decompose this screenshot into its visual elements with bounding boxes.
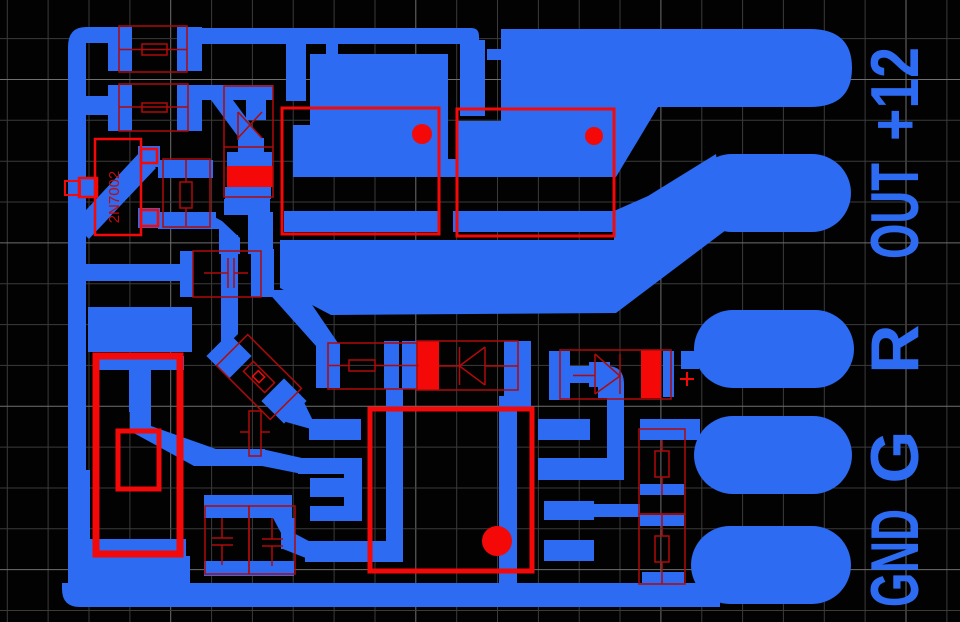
svg-text:GND: GND [857, 509, 933, 607]
svg-text:+12: +12 [857, 47, 933, 141]
svg-text:G: G [857, 431, 933, 484]
svg-text:OUT: OUT [857, 163, 933, 259]
svg-text:R: R [857, 324, 933, 373]
svg-text:2N7002: 2N7002 [106, 171, 123, 224]
